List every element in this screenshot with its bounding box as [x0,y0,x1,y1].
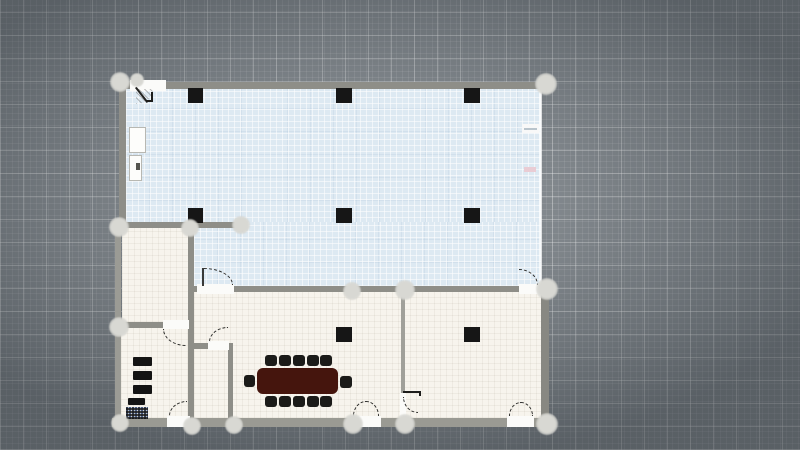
wall-closet-top[interactable] [194,343,209,349]
chair[interactable] [340,376,352,388]
chair[interactable] [265,355,277,366]
column[interactable] [336,88,352,103]
chair[interactable] [293,355,305,366]
selection-handle[interactable] [395,414,415,434]
wall-divider-a[interactable] [119,222,237,228]
selection-handle[interactable] [232,216,250,234]
wall-divider-e[interactable] [401,292,405,393]
chair[interactable] [307,355,319,366]
room-upper-left[interactable] [122,228,188,322]
door-jamb [403,391,421,396]
wall-right[interactable] [541,290,549,418]
selection-handle[interactable] [181,219,199,237]
edge-notch-line [524,128,537,130]
shelf[interactable] [133,357,152,366]
edge-tick-pink [524,167,536,172]
chair[interactable] [320,355,332,366]
wall-closet-side[interactable] [228,343,233,418]
selection-handle[interactable] [535,73,557,95]
column[interactable] [464,327,480,342]
shelf[interactable] [133,371,152,380]
chair[interactable] [320,396,332,407]
selection-handle[interactable] [183,417,201,435]
blue-edge-strip [539,88,542,286]
door-closet-opening [208,341,229,350]
cabinet[interactable] [129,127,146,153]
chair[interactable] [279,396,291,407]
small-fixture-cluster[interactable] [126,407,148,419]
selection-handle[interactable] [130,73,144,87]
chair[interactable] [307,396,319,407]
selection-handle[interactable] [343,414,363,434]
selection-handle[interactable] [109,317,129,337]
floor-plan [0,0,800,450]
door-d-opening [163,320,189,329]
column[interactable] [336,208,352,223]
selection-handle[interactable] [111,414,129,432]
shelf-bar[interactable] [128,398,145,405]
column[interactable] [464,208,480,223]
cabinet-mark [136,163,140,170]
selection-handle[interactable] [343,282,361,300]
column[interactable] [188,88,203,103]
chair[interactable] [279,355,291,366]
column[interactable] [336,327,352,342]
selection-handle[interactable] [536,413,558,435]
chair[interactable] [293,396,305,407]
column[interactable] [464,88,480,103]
shelf[interactable] [133,385,152,394]
chair[interactable] [244,375,255,387]
wall-c-main[interactable] [233,286,521,292]
conference-table[interactable] [257,368,338,394]
chair[interactable] [265,396,277,407]
selection-handle[interactable] [536,278,558,300]
selection-handle[interactable] [109,217,129,237]
rooms-bottom-band[interactable] [194,292,541,418]
selection-handle[interactable] [110,72,130,92]
selection-handle[interactable] [395,280,415,300]
selection-handle[interactable] [225,416,243,434]
wall-left-upper[interactable] [119,82,126,228]
zone-open-office[interactable] [126,88,541,224]
door-jamb [146,92,153,102]
door-bottom-right-opening [507,416,534,427]
